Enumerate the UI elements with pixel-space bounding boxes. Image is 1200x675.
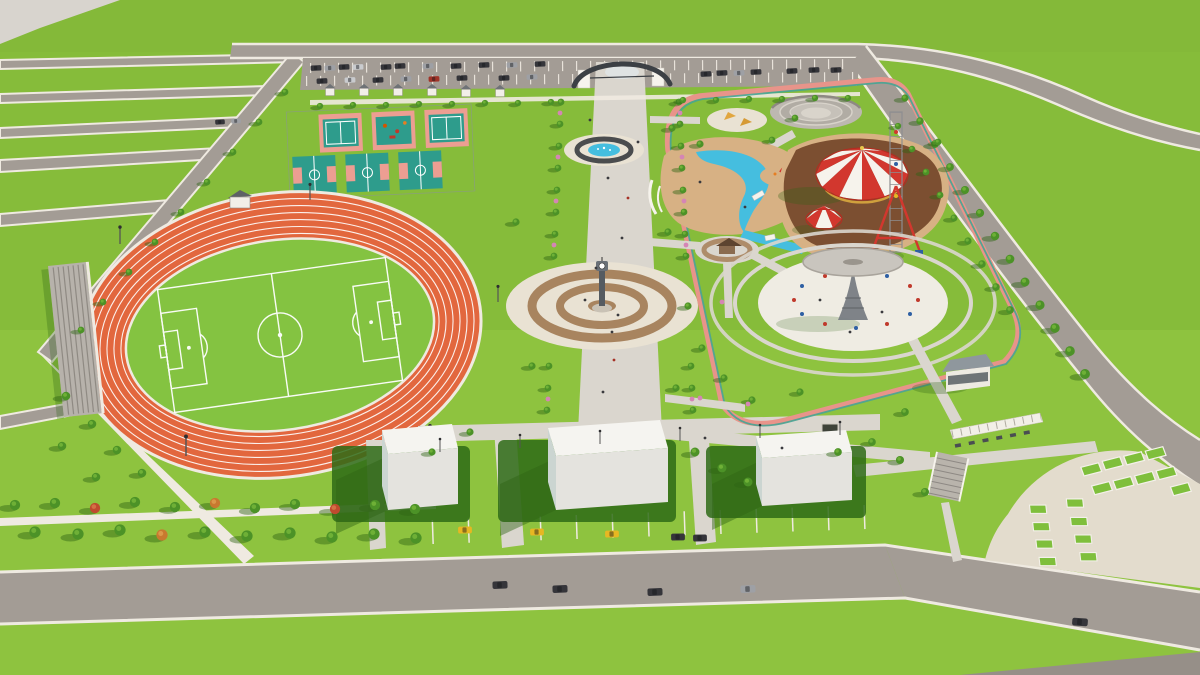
- car: [671, 533, 685, 540]
- planter-bed: [1079, 551, 1098, 563]
- car: [215, 119, 225, 124]
- planter-bed: [1074, 533, 1093, 545]
- person: [699, 181, 702, 184]
- car: [1072, 618, 1088, 627]
- planter-bed: [1065, 497, 1084, 509]
- car: [507, 62, 518, 68]
- planter-bed: [1029, 503, 1048, 515]
- car: [457, 75, 468, 81]
- car: [311, 65, 322, 71]
- planter-bed: [1032, 521, 1051, 533]
- person: [637, 141, 640, 144]
- car: [499, 75, 510, 81]
- car: [492, 581, 507, 589]
- person: [584, 299, 587, 302]
- taxi: [458, 526, 472, 533]
- car: [647, 588, 662, 596]
- car: [231, 118, 241, 123]
- car: [423, 63, 434, 69]
- person: [881, 311, 884, 314]
- car: [345, 77, 356, 83]
- playground-court: [371, 110, 416, 150]
- person: [781, 447, 784, 450]
- person: [744, 206, 747, 209]
- car: [395, 63, 406, 69]
- flower-bush: [698, 396, 703, 401]
- car: [325, 65, 336, 71]
- shade-sail-plaza: [707, 108, 767, 132]
- person: [602, 391, 605, 394]
- person: [613, 359, 616, 362]
- flower-bush: [556, 155, 561, 160]
- flower-bush: [558, 111, 563, 116]
- basketball-court: [292, 155, 337, 195]
- car: [451, 63, 462, 69]
- car: [786, 68, 797, 74]
- car: [693, 534, 707, 541]
- fountain-plaza-north: [564, 134, 644, 166]
- person: [621, 237, 624, 240]
- car: [373, 77, 384, 83]
- car: [479, 62, 490, 68]
- car: [339, 64, 350, 70]
- car: [733, 70, 744, 76]
- basketball-court: [398, 150, 443, 190]
- person: [595, 267, 598, 270]
- flower-bush: [680, 155, 685, 160]
- car: [527, 74, 538, 80]
- flower-bush: [682, 199, 687, 204]
- park-scene: [0, 0, 1200, 675]
- planter-bed: [1070, 516, 1089, 528]
- gazebo-plaza: [695, 236, 759, 264]
- person: [589, 119, 592, 122]
- flower-bush: [684, 243, 689, 248]
- person: [819, 299, 822, 302]
- car: [401, 76, 412, 82]
- planter-bed: [1038, 556, 1057, 568]
- person: [704, 437, 707, 440]
- car: [808, 67, 819, 73]
- flower-bush: [746, 402, 751, 407]
- flower-bush: [720, 300, 725, 305]
- car: [381, 64, 392, 70]
- car: [535, 61, 546, 67]
- car: [740, 585, 755, 593]
- car: [830, 67, 841, 73]
- car: [750, 69, 761, 75]
- car: [317, 78, 328, 84]
- person: [607, 177, 610, 180]
- tennis-court: [424, 108, 469, 148]
- flower-bush: [690, 397, 695, 402]
- person: [627, 197, 630, 200]
- flower-bush: [678, 111, 683, 116]
- flower-bush: [552, 243, 557, 248]
- tennis-court: [318, 113, 363, 153]
- taxi: [605, 530, 619, 537]
- car: [552, 585, 567, 593]
- person: [611, 331, 614, 334]
- taxi: [530, 528, 544, 535]
- flower-bush: [554, 199, 559, 204]
- basketball-court: [345, 153, 390, 193]
- planter-bed: [1035, 538, 1054, 550]
- flower-bush: [546, 397, 551, 402]
- person: [849, 331, 852, 334]
- car: [429, 76, 440, 82]
- car: [716, 70, 727, 76]
- person: [617, 314, 620, 317]
- car: [353, 64, 364, 70]
- car: [700, 71, 711, 77]
- park-render: [0, 0, 1200, 675]
